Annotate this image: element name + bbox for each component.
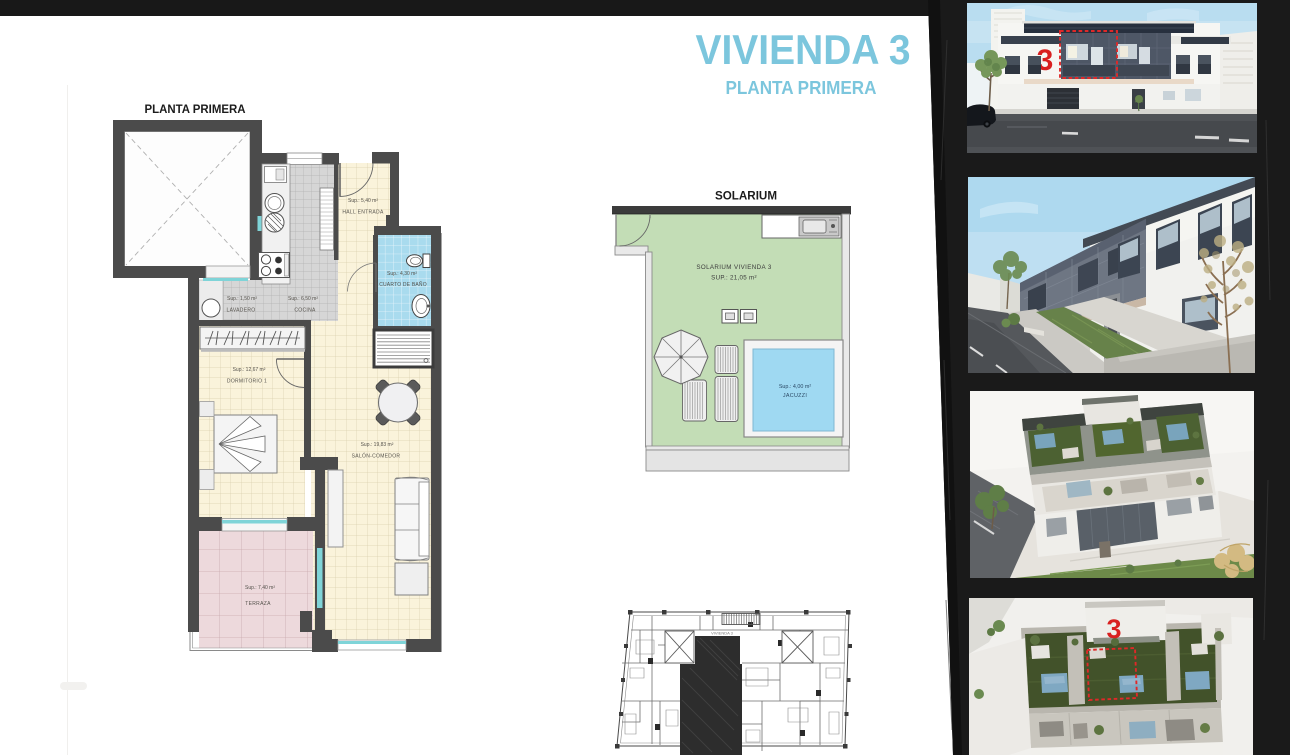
svg-text:PLANTA PRIMERA: PLANTA PRIMERA xyxy=(726,78,877,98)
svg-text:JACUZZI: JACUZZI xyxy=(783,393,807,399)
svg-text:CUARTO DE BAÑO: CUARTO DE BAÑO xyxy=(379,281,427,288)
svg-text:Sup.: 5,40 m²: Sup.: 5,40 m² xyxy=(348,198,378,204)
svg-text:3: 3 xyxy=(1106,614,1121,644)
svg-text:Sup.: 1,50 m²: Sup.: 1,50 m² xyxy=(227,296,257,302)
svg-text:COCINA: COCINA xyxy=(294,308,316,314)
svg-text:Sup.: 19,83 m²: Sup.: 19,83 m² xyxy=(361,442,394,448)
svg-text:SUP.: 21,05 m²: SUP.: 21,05 m² xyxy=(711,275,757,282)
svg-text:VIVIENDA 3: VIVIENDA 3 xyxy=(696,26,911,73)
svg-text:SALÓN-COMEDOR: SALÓN-COMEDOR xyxy=(352,453,401,460)
svg-text:LAVADERO: LAVADERO xyxy=(227,308,256,314)
svg-text:Sup.: 12,67 m²: Sup.: 12,67 m² xyxy=(233,367,266,373)
svg-text:Sup.: 4,30 m²: Sup.: 4,30 m² xyxy=(387,271,417,277)
svg-text:HALL ENTRADA: HALL ENTRADA xyxy=(342,210,384,216)
svg-text:DORMITORIO 1: DORMITORIO 1 xyxy=(227,379,267,385)
svg-text:SOLARIUM: SOLARIUM xyxy=(715,189,777,203)
svg-text:Sup.: 4,00 m²: Sup.: 4,00 m² xyxy=(779,384,812,390)
svg-text:PLANTA PRIMERA: PLANTA PRIMERA xyxy=(145,104,246,116)
svg-text:VIVIENDA 3: VIVIENDA 3 xyxy=(711,631,734,636)
svg-text:SOLARIUM VIVIENDA 3: SOLARIUM VIVIENDA 3 xyxy=(696,264,771,271)
svg-text:Sup.: 7,40 m²: Sup.: 7,40 m² xyxy=(245,585,275,591)
svg-text:TERRAZA: TERRAZA xyxy=(245,601,271,607)
svg-text:Sup.: 6,50 m²: Sup.: 6,50 m² xyxy=(288,296,318,302)
